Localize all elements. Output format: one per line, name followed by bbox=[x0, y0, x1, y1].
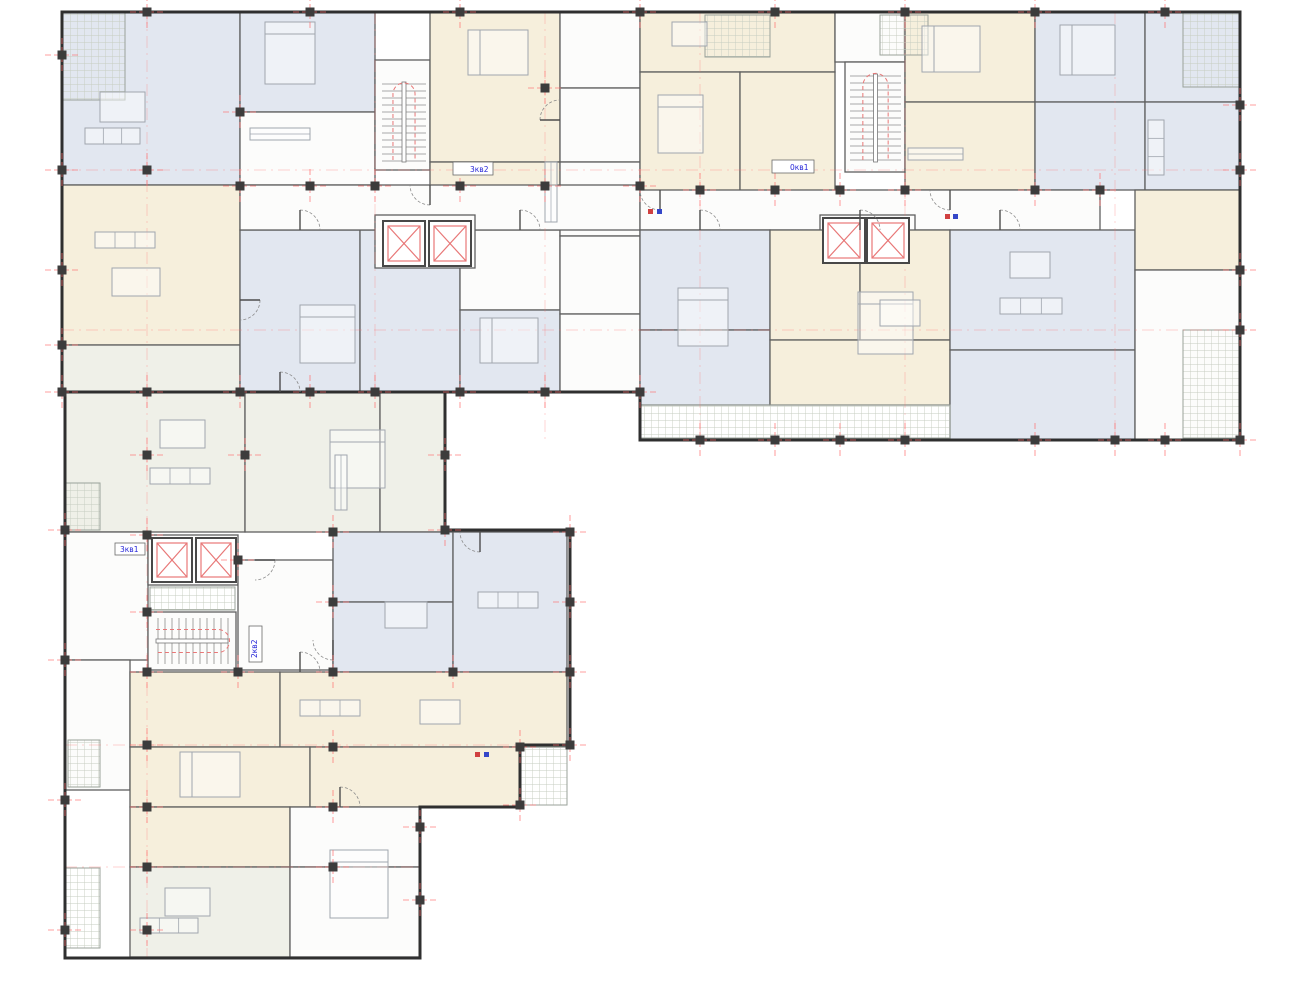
elevator-shaft bbox=[429, 221, 471, 266]
elevator-shaft bbox=[152, 538, 192, 582]
riser-mark bbox=[484, 752, 489, 757]
room bbox=[1135, 190, 1240, 270]
apartment-label: 3кв2 bbox=[453, 162, 493, 175]
elevator-shaft bbox=[823, 218, 865, 263]
bed-furniture bbox=[300, 305, 355, 363]
counter-furniture bbox=[545, 162, 557, 222]
rooms-layer bbox=[62, 12, 1240, 957]
counter-furniture bbox=[908, 148, 963, 160]
floor-plan-page: 3кв20кв13кв12кв2 bbox=[0, 0, 1307, 1000]
sofa-furniture bbox=[300, 700, 360, 716]
room bbox=[1035, 102, 1145, 190]
balcony bbox=[68, 740, 100, 787]
room bbox=[130, 807, 290, 867]
room bbox=[905, 102, 1035, 190]
room bbox=[240, 112, 375, 185]
bed-furniture bbox=[468, 30, 528, 75]
balcony bbox=[705, 15, 770, 57]
bed-furniture bbox=[180, 752, 240, 797]
bed-furniture bbox=[330, 850, 388, 918]
bed-furniture bbox=[922, 26, 980, 72]
elevator-shaft bbox=[867, 218, 909, 263]
table-furniture bbox=[100, 92, 145, 122]
room bbox=[560, 12, 640, 88]
room bbox=[560, 314, 640, 392]
room bbox=[950, 230, 1135, 350]
sofa-furniture bbox=[95, 232, 155, 248]
riser-mark bbox=[648, 209, 653, 214]
sofa-furniture bbox=[478, 592, 538, 608]
sofa-furniture bbox=[85, 128, 140, 144]
bed-furniture bbox=[1060, 25, 1115, 75]
table-furniture bbox=[160, 420, 205, 448]
apartment-label: 0кв1 bbox=[772, 160, 814, 173]
room bbox=[560, 236, 640, 314]
bed-furniture bbox=[658, 95, 703, 153]
table-furniture bbox=[385, 602, 427, 628]
bed-furniture bbox=[480, 318, 538, 363]
balcony bbox=[640, 405, 950, 438]
balcony bbox=[1183, 330, 1240, 438]
apartment-label: 2кв2 bbox=[249, 626, 262, 662]
room bbox=[62, 185, 240, 345]
riser-mark bbox=[657, 209, 662, 214]
table-furniture bbox=[672, 22, 707, 46]
sofa-furniture bbox=[1148, 120, 1164, 175]
apartment-label: 3кв1 bbox=[115, 543, 145, 555]
room bbox=[950, 350, 1135, 440]
room bbox=[130, 672, 280, 747]
table-furniture bbox=[1010, 252, 1050, 278]
elevator-shaft bbox=[383, 221, 425, 266]
balcony bbox=[150, 587, 235, 610]
apartment-label-text: 3кв1 bbox=[120, 545, 139, 554]
riser-mark bbox=[945, 214, 950, 219]
room bbox=[62, 345, 240, 392]
table-furniture bbox=[165, 888, 210, 916]
room bbox=[380, 392, 445, 532]
counter-furniture bbox=[335, 455, 347, 510]
balcony bbox=[62, 12, 125, 100]
sofa-furniture bbox=[150, 468, 210, 484]
balcony bbox=[520, 747, 567, 805]
balcony bbox=[880, 15, 928, 55]
apartment-label-text: 2кв2 bbox=[250, 639, 259, 658]
floor-plan-svg: 3кв20кв13кв12кв2 bbox=[0, 0, 1307, 1000]
room bbox=[560, 88, 640, 162]
riser-mark bbox=[475, 752, 480, 757]
bed-furniture bbox=[678, 288, 728, 346]
table-furniture bbox=[112, 268, 160, 296]
apartment-label-text: 0кв1 bbox=[790, 163, 809, 172]
table-furniture bbox=[880, 300, 920, 326]
balcony bbox=[66, 868, 100, 948]
room bbox=[333, 532, 453, 602]
apartment-label-text: 3кв2 bbox=[470, 165, 489, 174]
balcony bbox=[1183, 12, 1240, 87]
table-furniture bbox=[420, 700, 460, 724]
bed-furniture bbox=[265, 22, 315, 84]
balcony bbox=[65, 483, 100, 530]
riser-mark bbox=[953, 214, 958, 219]
sofa-furniture bbox=[1000, 298, 1062, 314]
counter-furniture bbox=[250, 128, 310, 140]
